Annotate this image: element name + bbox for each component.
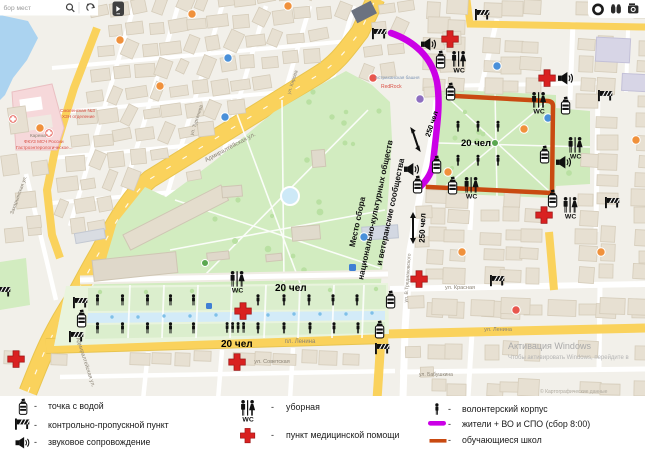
svg-text:ул. Бабушкина: ул. Бабушкина: [419, 372, 453, 378]
svg-text:Астраханская башня: Астраханская башня: [375, 75, 420, 80]
svg-text:звуковое сопровождение: звуковое сопровождение: [48, 437, 151, 447]
svg-text:-: -: [271, 402, 274, 412]
svg-text:-: -: [448, 435, 451, 445]
svg-text:Активация Windows: Активация Windows: [508, 341, 591, 351]
svg-text:ул. Советская: ул. Советская: [254, 359, 289, 365]
svg-text:ХЗН отделение: ХЗН отделение: [62, 114, 95, 119]
svg-text:ул. Красная: ул. Красная: [445, 285, 475, 291]
svg-text:точка с водой: точка с водой: [48, 401, 104, 411]
svg-text:-: -: [448, 404, 451, 414]
svg-text:-: -: [448, 419, 451, 429]
svg-text:обучающиеся школ: обучающиеся школ: [462, 435, 542, 445]
svg-text:контрольно-пропускной пункт: контрольно-пропускной пункт: [48, 420, 169, 430]
svg-text:20 чел: 20 чел: [461, 138, 491, 149]
svg-text:Чтобы активировать Windows, пе: Чтобы активировать Windows, перейдите в: [508, 354, 629, 361]
svg-text:уборная: уборная: [286, 402, 320, 412]
svg-text:ул. Ленина: ул. Ленина: [484, 327, 513, 333]
svg-text:Карема: Карема: [30, 133, 46, 138]
svg-text:бор мест: бор мест: [4, 4, 31, 12]
svg-text:пл. Ленина: пл. Ленина: [285, 339, 316, 345]
svg-text:250 чел: 250 чел: [417, 213, 427, 243]
svg-text:Гастроэнтерологическое...: Гастроэнтерологическое...: [16, 145, 73, 150]
svg-text:20 чел: 20 чел: [221, 339, 253, 350]
svg-text:-: -: [271, 430, 274, 440]
svg-text:RedRock: RedRock: [381, 84, 402, 90]
svg-text:пункт медицинской помощи: пункт медицинской помощи: [286, 430, 399, 440]
svg-text:-: -: [34, 420, 37, 430]
svg-text:20 чел: 20 чел: [275, 283, 307, 294]
svg-text:ФКУЗ МСЧ России: ФКУЗ МСЧ России: [24, 139, 64, 144]
svg-text:волонтерский корпус: волонтерский корпус: [462, 404, 548, 414]
svg-text:Смоленская №3: Смоленская №3: [60, 108, 95, 113]
svg-text:жители + ВО и СПО (сбор 8:00): жители + ВО и СПО (сбор 8:00): [462, 419, 590, 429]
svg-text:© Картографические данные: © Картографические данные: [540, 388, 608, 395]
svg-text:-: -: [34, 437, 37, 447]
svg-text:-: -: [34, 401, 37, 411]
